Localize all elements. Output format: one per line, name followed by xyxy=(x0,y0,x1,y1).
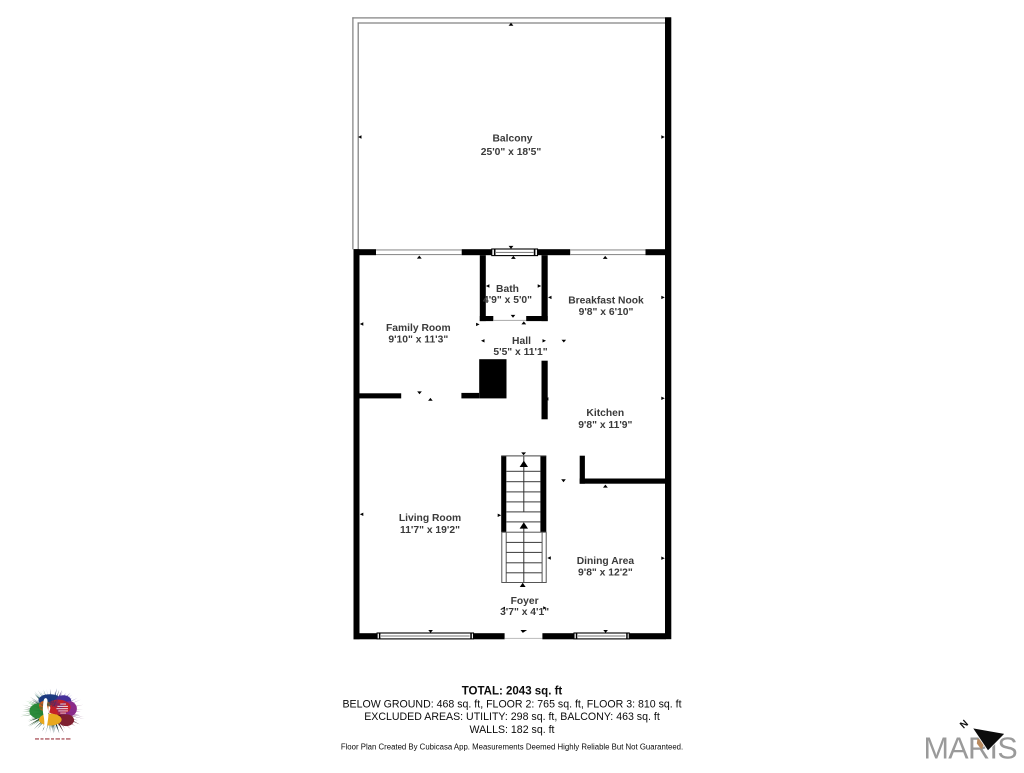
svg-text:MARIS: MARIS xyxy=(924,732,1018,766)
svg-text:Balcony: Balcony xyxy=(492,134,532,145)
svg-text:N: N xyxy=(958,718,971,731)
svg-text:Kitchen: Kitchen xyxy=(586,408,624,419)
svg-text:Bath: Bath xyxy=(496,284,519,295)
svg-text:Living Room: Living Room xyxy=(399,513,461,524)
svg-text:Breakfast Nook: Breakfast Nook xyxy=(568,296,644,307)
svg-text:5'5" x 11'1": 5'5" x 11'1" xyxy=(493,347,547,358)
svg-text:Dining Area: Dining Area xyxy=(577,556,635,567)
svg-text:TOTAL: 2043 sq. ft: TOTAL: 2043 sq. ft xyxy=(462,686,563,698)
svg-text:9'10" x 11'3": 9'10" x 11'3" xyxy=(388,335,448,346)
svg-text:BELOW GROUND: 468 sq. ft, FLOO: BELOW GROUND: 468 sq. ft, FLOOR 2: 765 s… xyxy=(342,698,681,710)
svg-text:25'0" x 18'5": 25'0" x 18'5" xyxy=(481,147,542,158)
svg-text:9'8" x 6'10": 9'8" x 6'10" xyxy=(579,307,634,318)
svg-text:WALLS: 182 sq. ft: WALLS: 182 sq. ft xyxy=(470,724,555,736)
svg-text:11'7" x 19'2": 11'7" x 19'2" xyxy=(400,525,460,536)
svg-text:9'8" x 12'2": 9'8" x 12'2" xyxy=(578,567,633,578)
svg-text:9'8" x 11'9": 9'8" x 11'9" xyxy=(578,420,632,431)
svg-text:Hall: Hall xyxy=(512,336,531,347)
svg-text:EXCLUDED AREAS: UTILITY: 298 s: EXCLUDED AREAS: UTILITY: 298 sq. ft, BAL… xyxy=(364,711,660,723)
svg-text:3'7" x 4'1": 3'7" x 4'1" xyxy=(500,607,549,618)
svg-text:4'9" x 5'0": 4'9" x 5'0" xyxy=(483,295,532,306)
svg-text:Family Room: Family Room xyxy=(386,323,451,334)
svg-text:Floor Plan Created By Cubicasa: Floor Plan Created By Cubicasa App. Meas… xyxy=(341,742,683,751)
svg-text:Foyer: Foyer xyxy=(511,596,539,607)
